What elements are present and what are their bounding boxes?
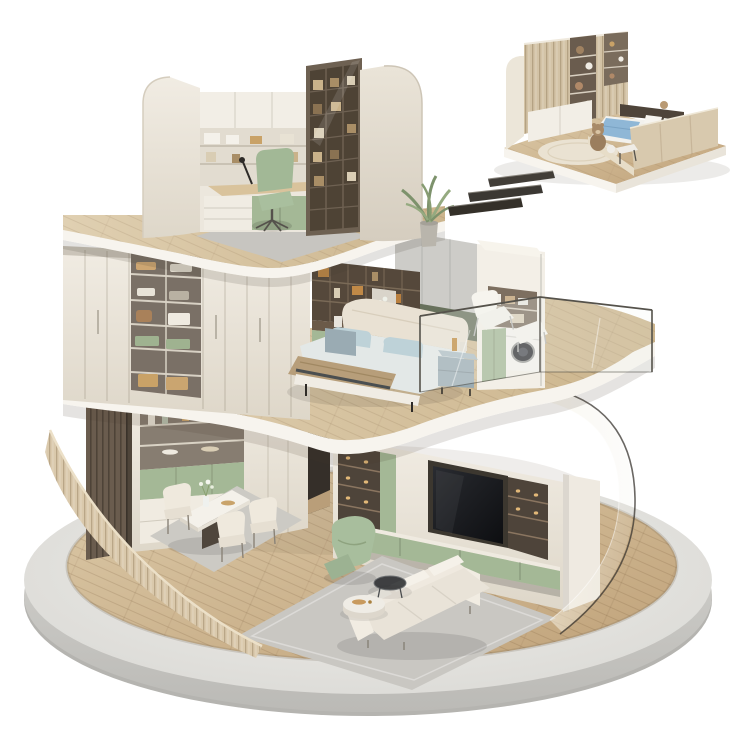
green-divider-panel [380,452,396,536]
inset-side-panel [506,56,524,150]
storage-box [166,377,188,390]
curved-wall-right [360,66,422,241]
glass-bookcase [306,58,362,236]
storage-box [168,313,190,325]
folded-clothes [169,291,189,300]
plush-bear [575,82,583,90]
motion-dashes [448,171,555,216]
storage-box [250,136,262,144]
plant-pot [420,222,438,247]
plush-bunny [585,62,592,69]
storage-box [138,374,158,387]
render-canvas [0,0,750,750]
display-shelves-right [508,477,548,560]
folded-clothes [137,288,155,296]
curved-wall-left [143,77,200,238]
upper-cabinets [198,92,308,128]
orange-box [352,286,363,295]
plush-bear [660,101,668,109]
marble-coffee-table [343,595,385,613]
plush-bunny [607,145,615,153]
desk-drawers [204,196,252,230]
chair-back [256,148,294,192]
green-bin [166,339,190,349]
green-bin [135,336,159,346]
inset-kids-bedroom [494,32,730,193]
top-floor [143,58,454,262]
bag [136,310,152,322]
storage-box [204,133,220,144]
storage-box [280,134,294,144]
storage-box [226,135,239,144]
inset-cubbies [604,32,628,86]
dash [448,198,523,216]
plush-bear [576,46,584,54]
